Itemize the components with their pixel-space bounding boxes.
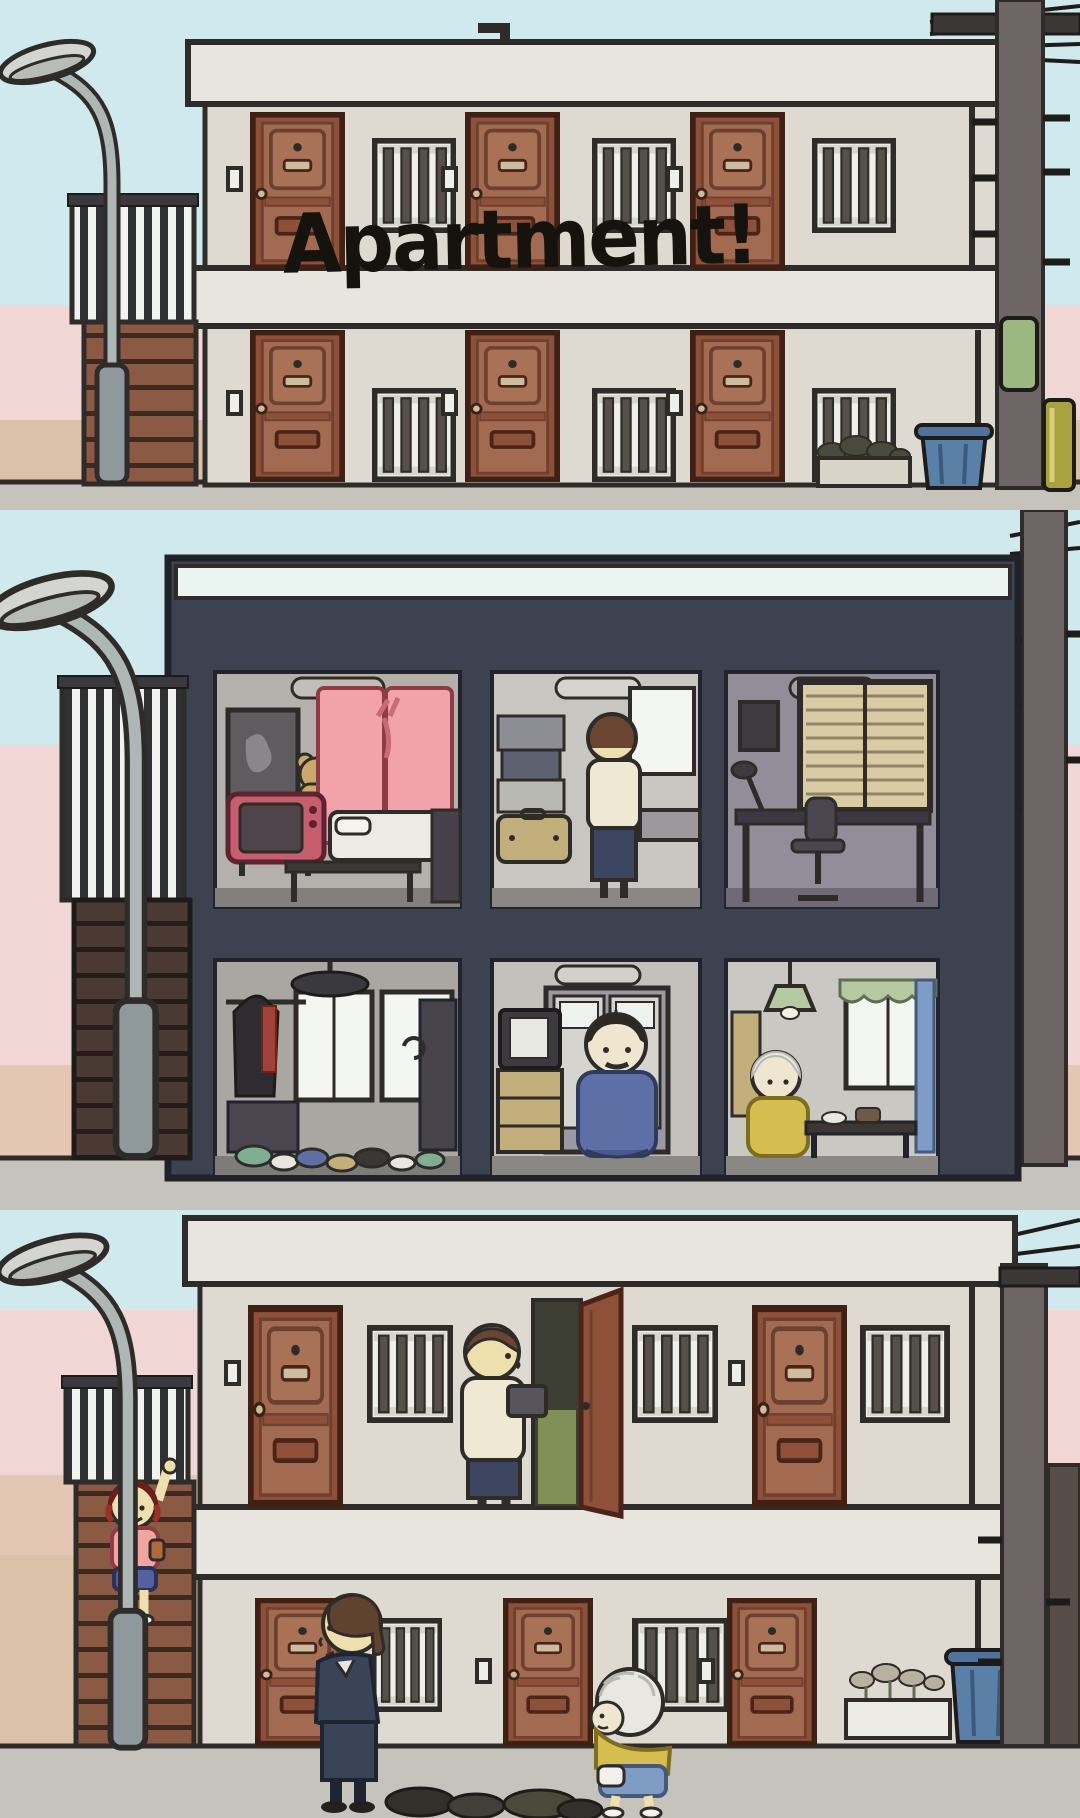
panel-exterior-residents	[0, 1210, 1080, 1818]
entrance-door	[693, 333, 782, 480]
barred-window	[374, 1621, 440, 1710]
entrance-door	[253, 333, 342, 480]
resident-at-counter	[588, 714, 640, 898]
room-tv	[492, 960, 700, 1175]
roof-edge	[176, 566, 1010, 598]
cutaway-building	[168, 558, 1018, 1178]
held-paper	[598, 1766, 624, 1786]
apartment-sign: Apartment!	[282, 186, 745, 325]
old-lady	[748, 1052, 808, 1156]
room-kitchen	[492, 672, 700, 907]
doorbell	[700, 1660, 713, 1682]
entrance-door	[468, 333, 557, 480]
room-messy	[215, 960, 460, 1175]
doorbell	[730, 1362, 743, 1384]
panel-cutaway-interior	[0, 510, 1080, 1210]
barred-window	[815, 141, 894, 231]
comic-page: Apartment!	[0, 0, 1080, 1818]
blue-curtain	[916, 980, 934, 1152]
pole-sign	[1001, 318, 1037, 390]
red-scarf	[262, 1006, 276, 1072]
room-grandma	[726, 960, 938, 1175]
roof-slab	[185, 1218, 1015, 1284]
doorbell	[477, 1660, 490, 1682]
dark-sofa	[432, 810, 460, 902]
dark-cabinet	[228, 1102, 298, 1152]
stacked-boxes	[498, 716, 564, 812]
gas-cylinder	[1044, 400, 1074, 490]
doorbell	[226, 1362, 239, 1384]
blue-trash-bin	[916, 425, 992, 488]
carried-box	[508, 1386, 546, 1416]
tv-on-tan-dresser	[498, 1010, 562, 1152]
entrance-door	[755, 1309, 844, 1504]
room-office	[726, 672, 938, 907]
small-frame	[740, 702, 778, 750]
entrance-door	[506, 1601, 591, 1744]
barred-window	[863, 1328, 948, 1421]
ceiling-light	[556, 966, 640, 984]
striped-fence	[68, 194, 198, 322]
counter	[640, 810, 700, 840]
flower-planter	[846, 1664, 950, 1738]
ceiling-light	[556, 678, 640, 698]
barred-window	[595, 391, 674, 480]
roof-slab	[188, 42, 1016, 104]
entrance-door	[730, 1601, 815, 1744]
held-bag	[150, 1540, 164, 1560]
room-living	[215, 672, 460, 907]
seated-man-with-mustache	[578, 1010, 656, 1157]
barred-window	[370, 1328, 451, 1421]
suitcase	[498, 810, 570, 862]
balcony-slab	[185, 1507, 1020, 1577]
venetian-blinds	[800, 682, 930, 810]
entrance-door	[251, 1309, 340, 1504]
dark-shelf	[420, 1000, 456, 1150]
panel-exterior-sign: Apartment!	[0, 0, 1080, 510]
bright-window	[630, 688, 694, 774]
barred-window	[635, 1328, 716, 1421]
businessman-walking	[316, 1595, 384, 1813]
